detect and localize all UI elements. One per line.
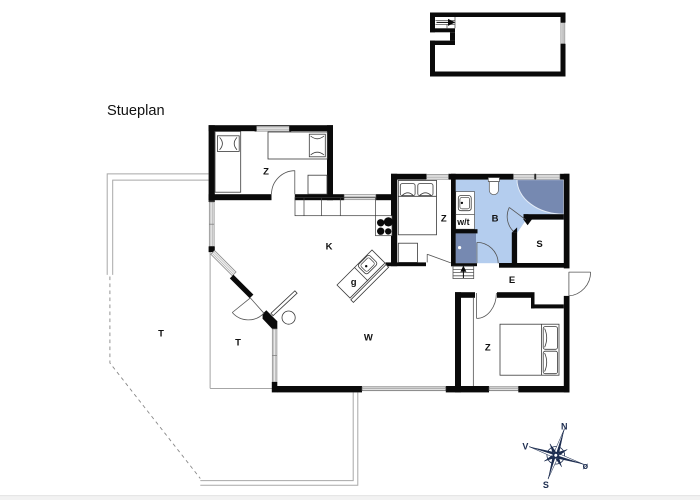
svg-text:Z: Z — [485, 342, 491, 353]
svg-text:T: T — [235, 338, 241, 349]
svg-text:ø: ø — [583, 461, 589, 471]
svg-text:E: E — [509, 275, 515, 286]
svg-text:Z: Z — [263, 167, 269, 178]
svg-text:w/t: w/t — [456, 217, 469, 227]
svg-text:Stueplan: Stueplan — [107, 103, 165, 119]
svg-text:T: T — [158, 329, 164, 340]
svg-text:W: W — [364, 333, 373, 344]
svg-text:N: N — [561, 421, 568, 431]
svg-text:B: B — [492, 214, 499, 225]
svg-text:S: S — [543, 480, 549, 490]
svg-text:Z: Z — [441, 213, 447, 224]
svg-text:K: K — [326, 242, 333, 253]
svg-text:S: S — [536, 239, 542, 250]
svg-text:g: g — [351, 277, 357, 288]
svg-text:V: V — [522, 442, 528, 452]
